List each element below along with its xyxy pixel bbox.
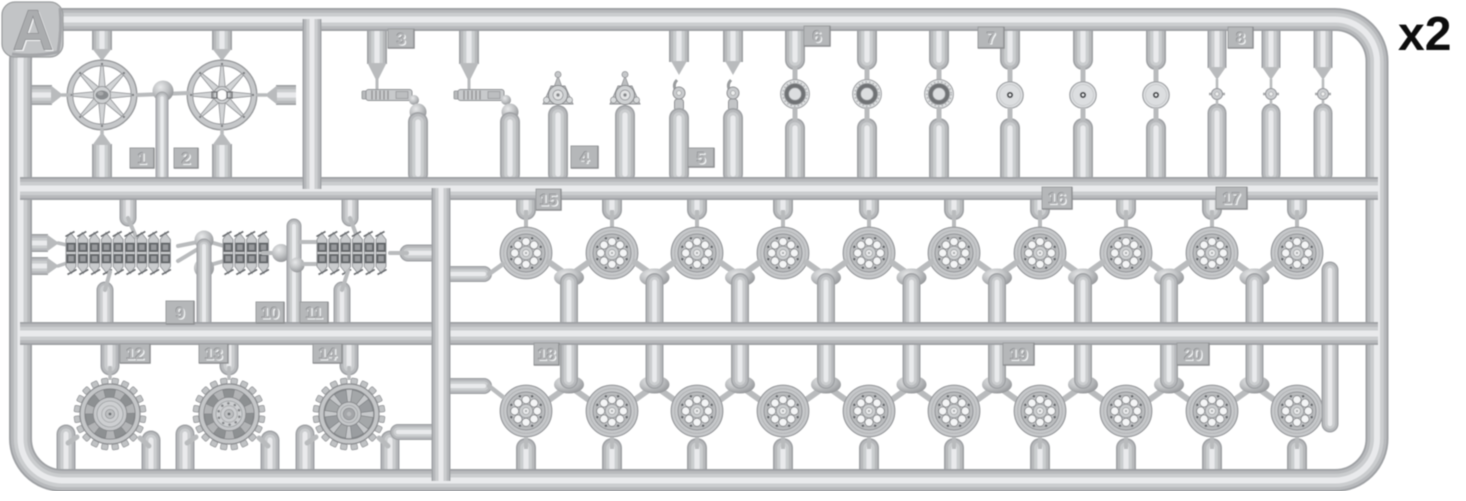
svg-text:19: 19: [1009, 346, 1027, 364]
svg-text:18: 18: [537, 346, 555, 364]
svg-text:x2: x2: [1398, 8, 1451, 61]
svg-text:5: 5: [696, 149, 705, 167]
svg-text:6: 6: [812, 28, 821, 46]
svg-text:7: 7: [986, 29, 995, 47]
svg-text:15: 15: [539, 191, 557, 209]
svg-text:3: 3: [396, 30, 405, 48]
svg-text:17: 17: [1222, 190, 1240, 208]
svg-text:11: 11: [305, 304, 322, 322]
svg-text:8: 8: [1236, 29, 1245, 47]
svg-text:1: 1: [137, 150, 146, 168]
svg-text:16: 16: [1048, 190, 1066, 208]
svg-text:14: 14: [318, 345, 337, 363]
svg-text:10: 10: [261, 304, 279, 322]
svg-text:20: 20: [1184, 346, 1202, 364]
svg-text:9: 9: [175, 304, 184, 322]
svg-text:12: 12: [126, 345, 144, 363]
svg-text:4: 4: [580, 149, 590, 167]
svg-text:2: 2: [181, 150, 190, 168]
svg-text:13: 13: [204, 345, 222, 363]
svg-text:A: A: [12, 0, 53, 63]
